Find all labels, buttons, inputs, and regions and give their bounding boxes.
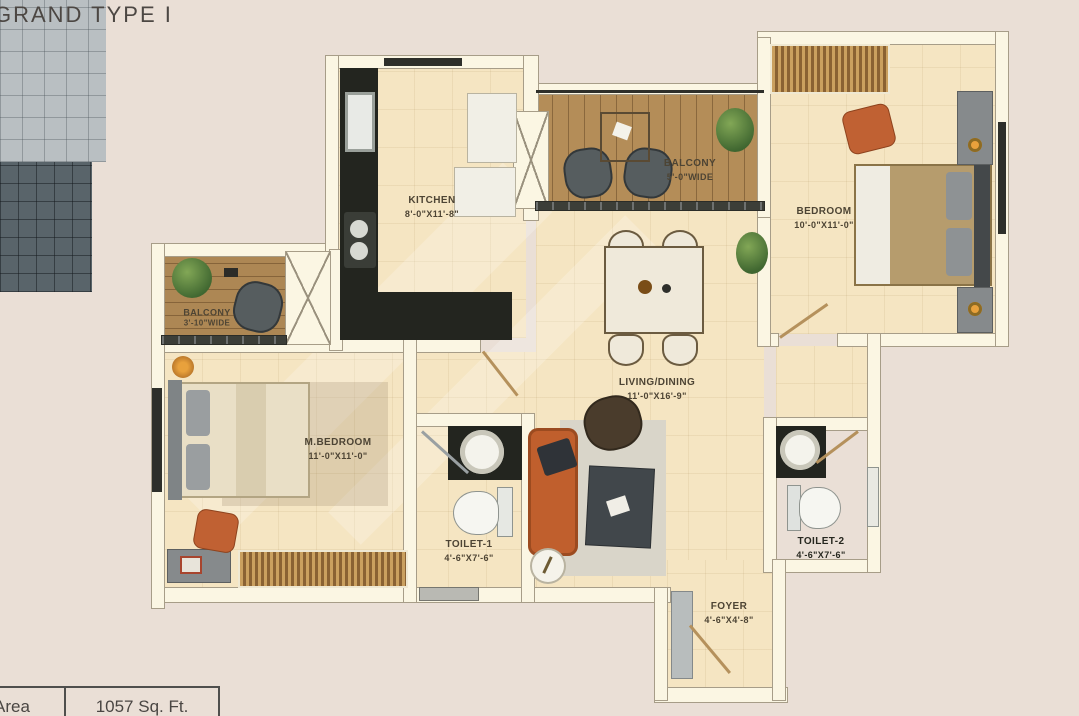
balcony-phone — [224, 268, 238, 277]
toilet2-window — [868, 468, 878, 526]
room-label-bedroom: BEDROOM 10'-0"X11'-0" — [794, 205, 854, 231]
room-label-living-dining: LIVING/DINING 11'-0"X16'-9" — [619, 376, 695, 402]
bed-headboard — [168, 380, 182, 500]
kitchen-counter — [340, 292, 512, 340]
bedside-lamp — [172, 356, 194, 378]
dining-chair — [608, 334, 644, 366]
master-bedroom-window — [152, 388, 162, 492]
bed-headboard — [974, 162, 990, 288]
table-bowl — [638, 280, 652, 294]
hob-burner — [350, 220, 368, 238]
plant-icon — [736, 232, 768, 274]
refrigerator — [468, 94, 516, 162]
kitchen-appliance — [455, 168, 515, 216]
bed-pillow — [946, 228, 972, 276]
room-label-foyer: FOYER 4'-6"X4'-8" — [704, 600, 753, 626]
wall — [880, 334, 1008, 346]
bedroom-window — [998, 122, 1006, 234]
wall — [764, 418, 776, 572]
wall — [404, 414, 534, 426]
wall — [773, 560, 880, 572]
kitchen-sink — [345, 92, 375, 152]
table-bowl — [662, 284, 671, 293]
bed-runner — [236, 384, 266, 496]
wall — [758, 38, 770, 218]
wall — [868, 334, 880, 572]
floorplan-page: GRAND TYPE I — [0, 0, 1079, 716]
toilet1-basin — [460, 430, 504, 474]
room-label-kitchen: KITCHEN 8'-0"X11'-8" — [405, 194, 459, 220]
room-label-balcony-top: BALCONY 5'-0"WIDE — [664, 157, 716, 183]
room-label-balcony-left: BALCONY 3'-10"WIDE — [183, 307, 230, 330]
area-value-cell: 1057 Sq. Ft. — [66, 686, 220, 716]
toilet2-wc-bowl — [800, 488, 840, 528]
utility-door — [420, 588, 478, 600]
left-balcony-railing — [162, 336, 286, 344]
toilet1-wc-bowl — [454, 492, 498, 534]
window-x-panel — [514, 112, 548, 208]
master-chair — [193, 509, 239, 553]
floor-plan: KITCHEN 8'-0"X11'-8" BALCONY 5'-0"WIDE B… — [0, 0, 1079, 292]
balcony-top-window — [536, 90, 764, 93]
dining-chair — [662, 334, 698, 366]
dresser-lamp — [968, 138, 982, 152]
wall — [758, 32, 1008, 44]
wall — [773, 560, 785, 700]
hob-burner — [350, 242, 368, 260]
master-wardrobe — [240, 552, 406, 586]
kitchen-window — [384, 58, 462, 66]
right-corridor-floor — [776, 346, 868, 422]
foyer-cabinet — [672, 592, 692, 678]
top-balcony-railing — [536, 202, 764, 210]
area-table: Area 1057 Sq. Ft. — [0, 686, 220, 716]
wall — [655, 588, 667, 700]
area-label-cell: Area — [0, 686, 66, 716]
wall — [412, 338, 480, 352]
desk-book — [180, 556, 202, 574]
toilet2-floor — [0, 162, 92, 292]
bed-pillow — [186, 444, 210, 490]
room-label-toilet2: TOILET-2 4'-6"X7'-6" — [796, 535, 845, 561]
wall — [326, 56, 338, 256]
dining-table — [604, 246, 704, 334]
wall — [655, 688, 787, 702]
plant-icon — [172, 258, 212, 298]
area-label: Area — [0, 697, 30, 716]
bed-pillow — [946, 172, 972, 220]
bed-pillow — [186, 390, 210, 436]
page-title: GRAND TYPE I — [0, 2, 173, 28]
plant-icon — [716, 108, 754, 152]
toilet2-wc — [788, 486, 800, 530]
bedroom-wardrobe — [772, 46, 888, 92]
room-label-master-bedroom: M.BEDROOM 11'-0"X11'-0" — [305, 436, 372, 462]
room-label-toilet1: TOILET-1 4'-6"X7'-6" — [444, 538, 493, 564]
bedroom-dresser — [958, 92, 992, 164]
bed-sheet — [856, 166, 890, 284]
toilet1-wc — [498, 488, 512, 536]
area-value: 1057 Sq. Ft. — [96, 697, 189, 716]
nightstand-lamp — [968, 302, 982, 316]
toilet2-basin — [780, 430, 820, 470]
window-x-panel — [286, 252, 330, 344]
